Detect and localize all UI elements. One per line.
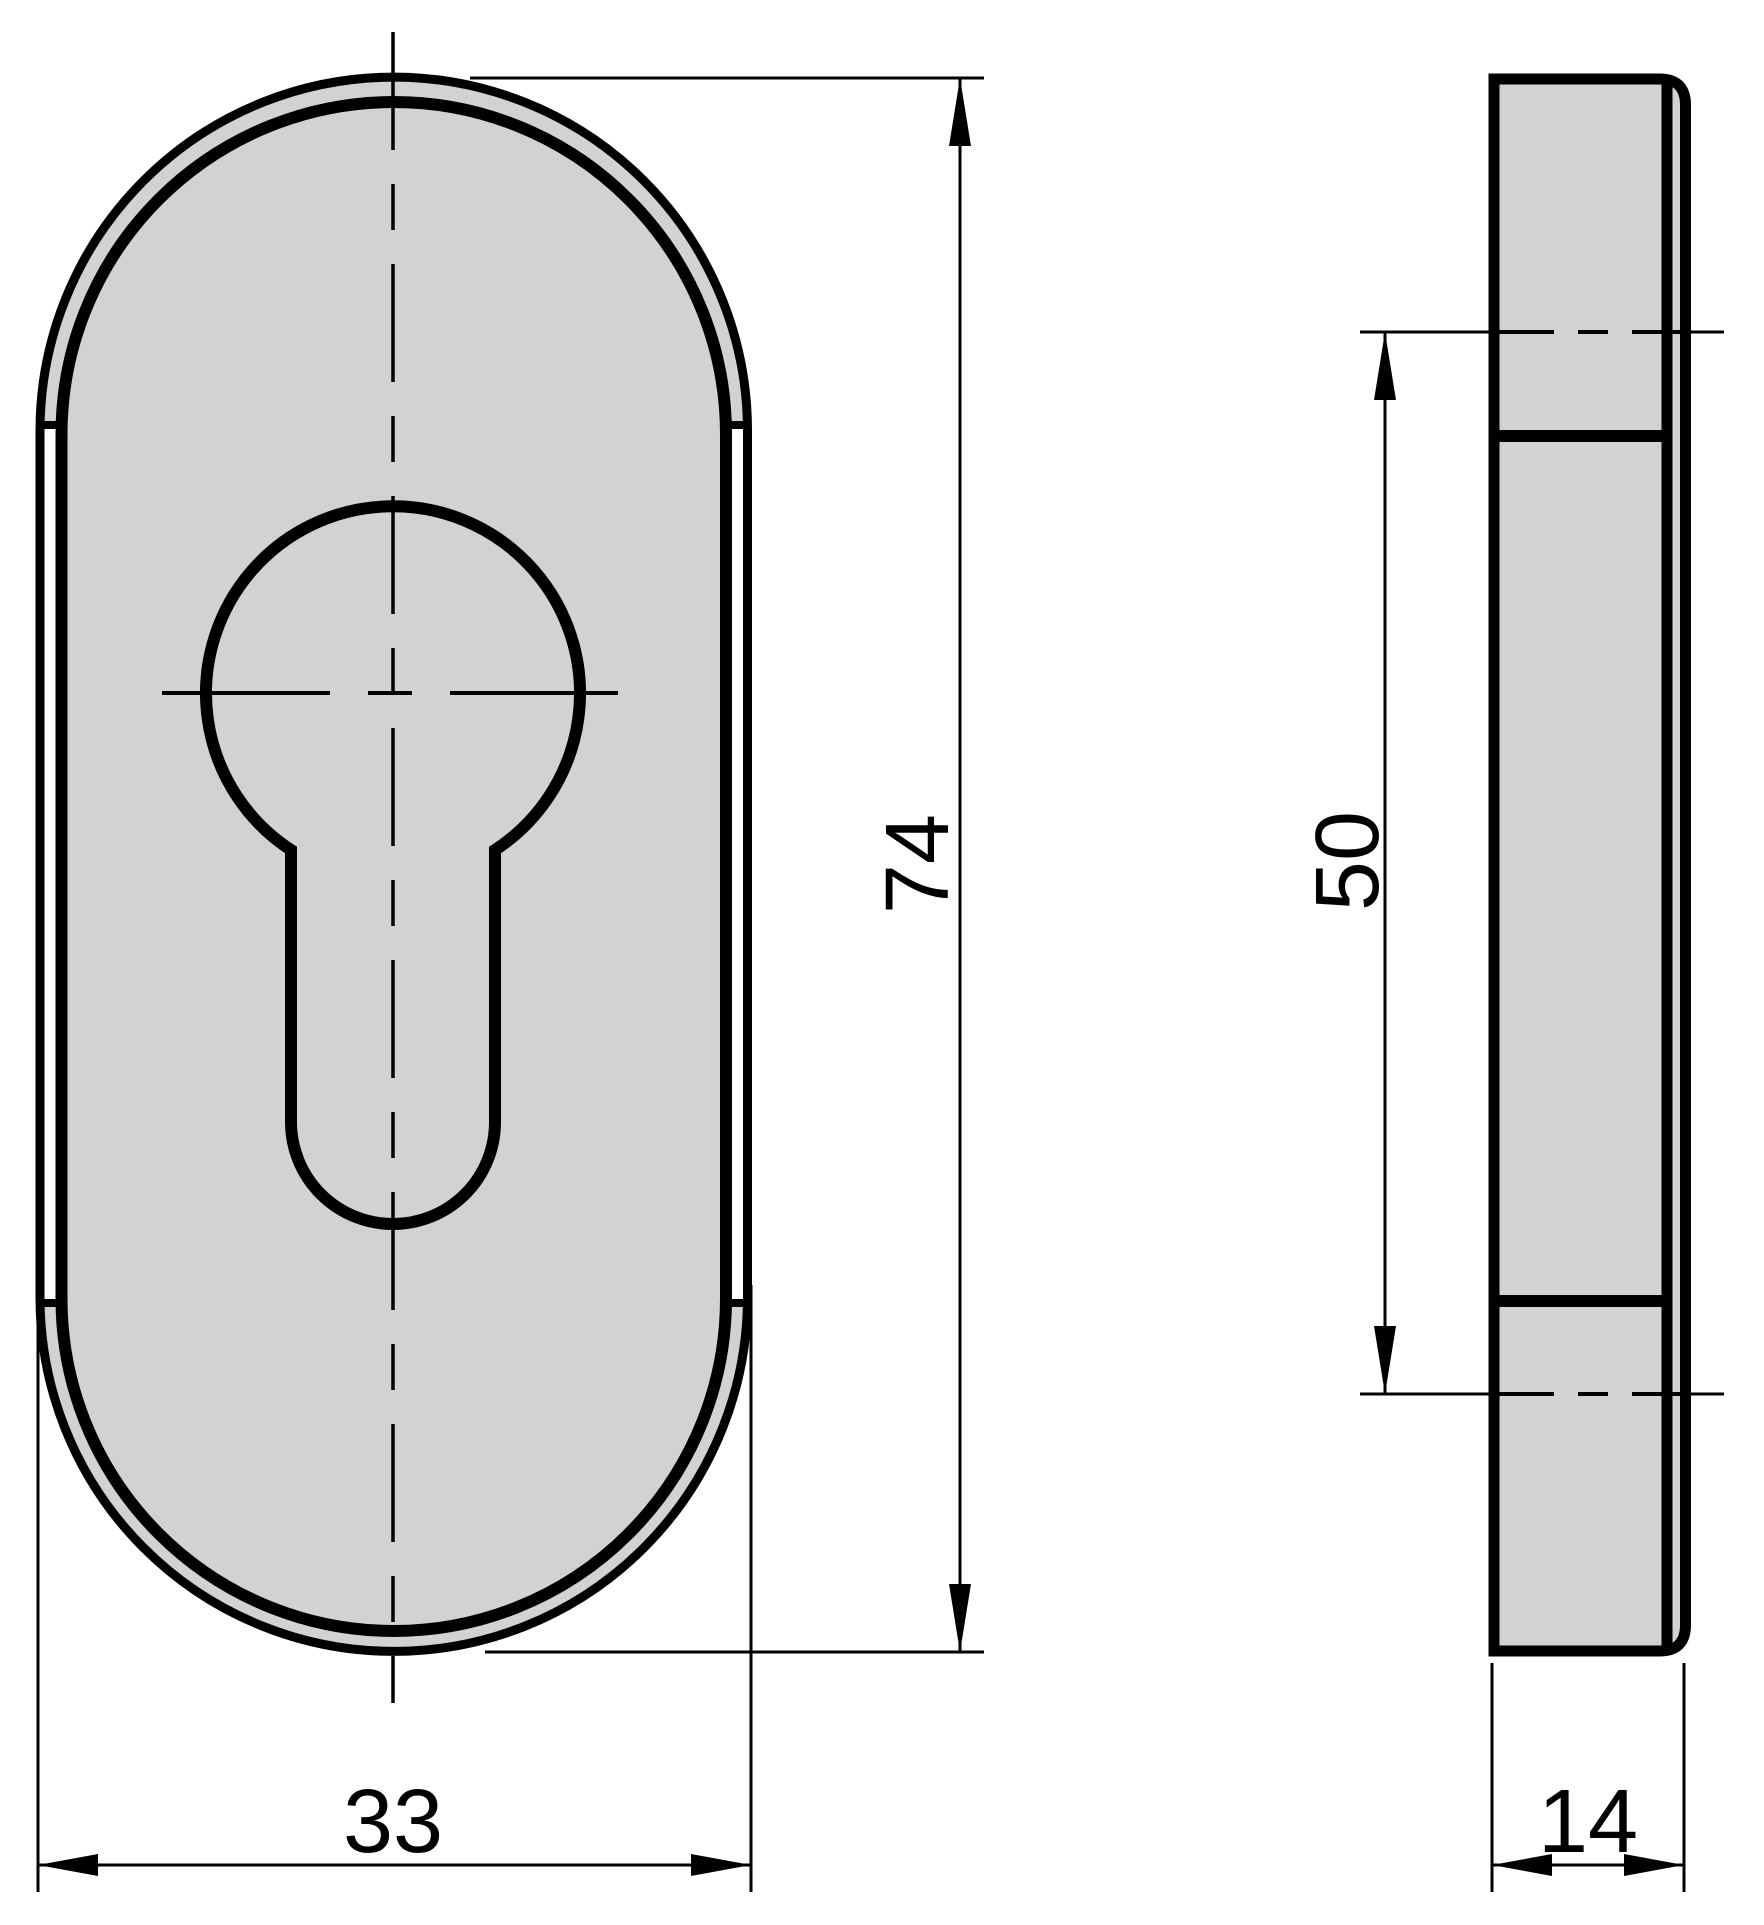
dim33-arrow-left [38,1854,98,1876]
dim33-label: 33 [343,1772,443,1872]
dim50-arrow-down [1374,1326,1396,1394]
dim74-label: 74 [868,814,968,914]
dim14-label: 14 [1538,1772,1638,1872]
dim74-arrow-down [949,1584,971,1652]
dimension-depth-14: 14 [1492,1663,1684,1892]
dim74-arrow-up [949,78,971,146]
dim33-arrow-right [691,1854,751,1876]
front-view [38,32,749,1703]
side-view [1494,79,1686,1651]
technical-drawing-canvas: 74 33 50 14 [0,0,1764,1925]
front-right-gap [732,425,744,1303]
front-left-gap [45,425,57,1303]
side-body [1494,79,1686,1651]
dim50-label: 50 [1298,811,1398,911]
drawing-sheet: 74 33 50 14 [0,0,1764,1925]
dim50-arrow-up [1374,332,1396,400]
